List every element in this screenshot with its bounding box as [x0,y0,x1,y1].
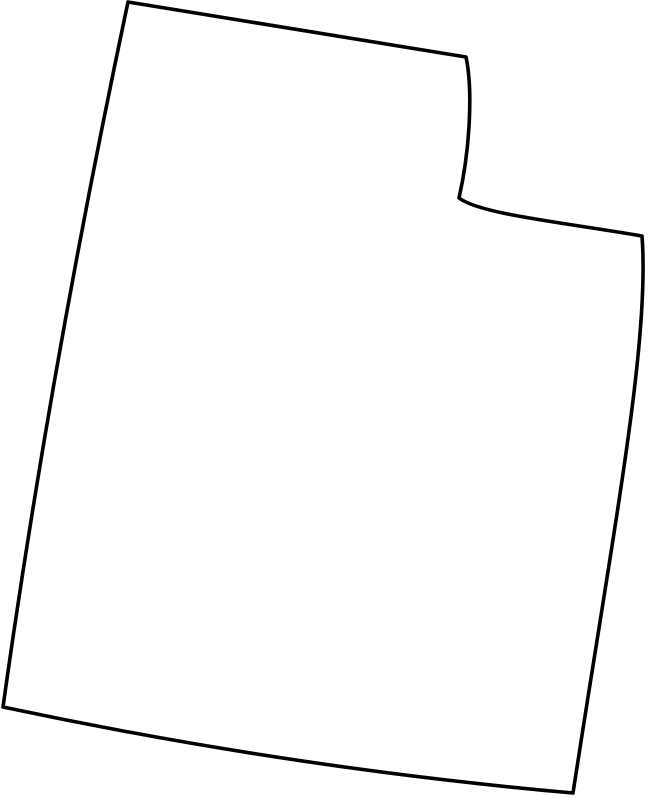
utah-state-outline-map [0,0,649,800]
map-canvas [0,0,649,800]
state-border-path [3,2,643,793]
